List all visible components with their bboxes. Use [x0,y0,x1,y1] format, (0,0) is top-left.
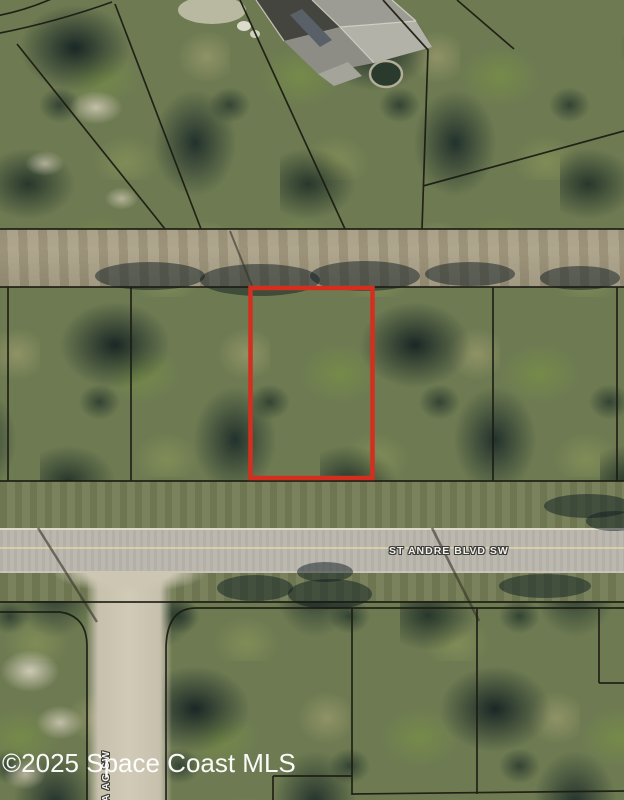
aerial-map: ST ANDRE BLVD SW YA AC SW ©2025 Space Co… [0,0,624,800]
street-label-st-andre-blvd: ST ANDRE BLVD SW [389,545,509,557]
highlighted-parcel-outline [251,288,373,478]
map-overlay [0,0,624,800]
driveway-patch [178,0,246,24]
mls-watermark: ©2025 Space Coast MLS [2,748,296,779]
pond [370,61,402,87]
parcel-boundaries [0,0,624,800]
tree-shadows [95,261,624,609]
house-roof [256,0,432,86]
light-object [237,21,251,31]
